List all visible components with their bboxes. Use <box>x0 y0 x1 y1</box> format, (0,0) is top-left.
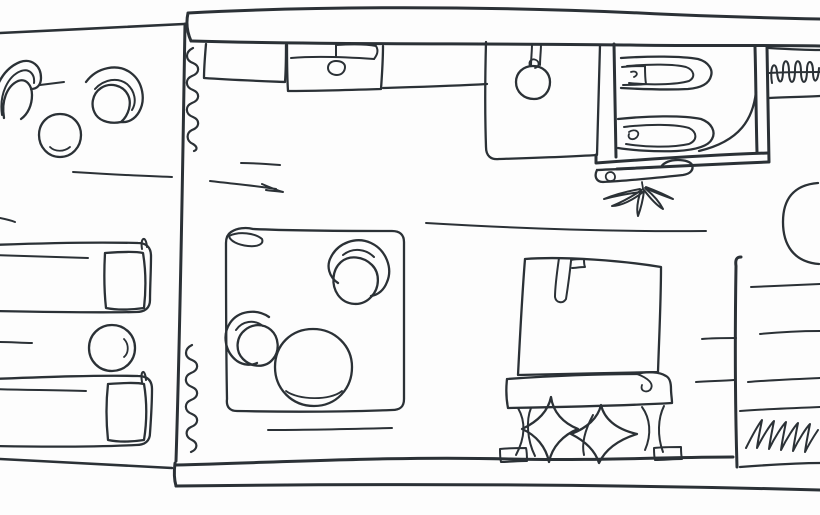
rug-mark <box>268 428 392 430</box>
shelf-unit-bottom <box>740 463 820 467</box>
toilet-2-inner <box>624 125 695 147</box>
patio-mark <box>40 82 64 85</box>
shelf-unit-left-wall <box>735 257 741 467</box>
kitchen-counter-left <box>204 44 286 82</box>
terrace-top-wall <box>0 24 184 33</box>
pendant-stem <box>531 44 541 66</box>
plant-stem <box>642 182 643 189</box>
shelf-line-1 <box>751 284 820 287</box>
main-bottom-wall-inner <box>176 457 733 465</box>
coffee-table <box>275 329 352 406</box>
shelf-band-top <box>740 407 820 411</box>
stove-handle <box>291 57 374 59</box>
rug-chair-2-seat <box>238 325 278 366</box>
main-top-wall-outer <box>187 8 820 41</box>
edge-mark-2 <box>0 342 32 343</box>
shelf-line-2 <box>702 331 820 339</box>
curtain-wave-lower <box>186 345 197 452</box>
edge-mark-1 <box>0 218 15 222</box>
footboard-curl <box>637 374 652 391</box>
stove-knob <box>328 61 345 75</box>
bench-knob <box>606 172 615 181</box>
lounger-2-frame <box>0 376 152 447</box>
rug-chair-2-outer <box>226 312 269 365</box>
bath-right-wall-outer <box>767 47 769 162</box>
main-left-wall <box>176 24 185 461</box>
bottom-wall-left-cap <box>174 463 176 486</box>
pendant-bowl <box>516 66 550 99</box>
rug-fold <box>229 233 262 246</box>
bed-footboard <box>506 372 672 408</box>
bath-bottom-outer <box>596 153 768 163</box>
plant-leaf-2 <box>637 190 644 216</box>
lounger-1-pillow <box>104 252 145 310</box>
toilet-1-cistern <box>622 66 646 85</box>
toilet-2-spiral <box>629 130 639 139</box>
bed-pillow-tab <box>555 258 571 302</box>
floor-mark-2 <box>210 181 283 192</box>
radiator-scribble <box>746 420 818 452</box>
patio-chair-2-seat <box>93 85 130 123</box>
half-round-table <box>783 183 819 264</box>
curtain-wave-upper <box>187 48 198 151</box>
lounger-1-frame <box>0 243 151 313</box>
main-bottom-wall-outer <box>176 485 820 490</box>
side-table-arc <box>124 339 128 357</box>
lounger-2-inner <box>0 389 86 391</box>
floor-mark-3 <box>426 223 706 231</box>
rug-chair-1-mid <box>343 250 374 257</box>
lounger-2-pillow <box>107 383 147 442</box>
patio-table-arc <box>50 147 70 151</box>
bed-tab-box <box>571 259 585 268</box>
sink-unit <box>485 42 600 159</box>
bed-leg-right <box>642 406 664 452</box>
pillow-star-2 <box>571 405 637 463</box>
coffee-table-arc <box>286 391 342 398</box>
rug-chair-1-seat <box>333 257 377 304</box>
rug-outline <box>226 228 404 412</box>
terrace-floor-mark <box>73 172 172 177</box>
bed-duvet <box>518 258 661 375</box>
toilet-1-curl <box>631 72 637 77</box>
floor-plan-canvas <box>0 0 820 515</box>
patio-chair-1-seat <box>3 80 32 119</box>
lounger-1-inner <box>0 255 88 258</box>
floor-plan-page <box>0 0 820 515</box>
kitchen-counter-right <box>383 84 487 88</box>
bath-left-wall-inner <box>614 44 616 157</box>
wardrobe-bottom <box>769 96 820 98</box>
floor-mark-1 <box>241 163 280 165</box>
shelf-line-3 <box>696 378 820 382</box>
terrace-bottom-edge <box>0 459 172 468</box>
rug-chair-1-outer <box>329 240 390 296</box>
wardrobe-top <box>769 48 820 50</box>
